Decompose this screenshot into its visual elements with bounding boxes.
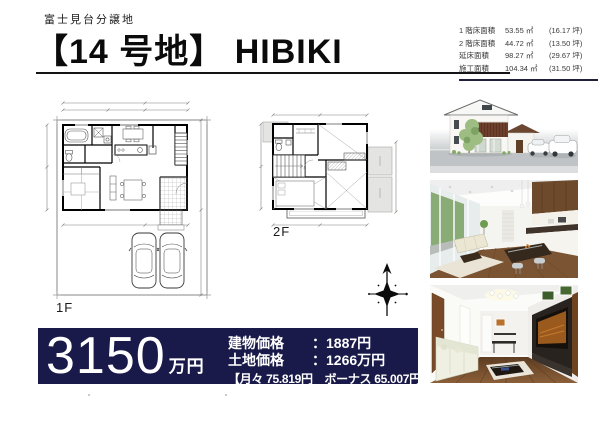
floorplan-2f — [256, 112, 398, 233]
area-value: 44.72 ㎡ — [505, 38, 549, 51]
print-speck — [88, 394, 90, 396]
price-amount: 3150 — [46, 332, 166, 380]
exterior-photo — [430, 93, 578, 173]
ldk-interior-render — [430, 180, 578, 278]
price-unit: 万円 — [169, 352, 205, 377]
flyer-page: 富士見台分譲地 【14 号地】 HIBIKI 1 階床面積 53.55 ㎡ (1… — [0, 0, 600, 426]
floor-area-table: 1 階床面積 53.55 ㎡ (16.17 坪) 2 階床面積 44.72 ㎡ … — [459, 25, 598, 81]
living-photo — [430, 285, 578, 383]
north-compass-icon — [366, 262, 410, 320]
price-details: 建物価格 ：1887円 土地価格 ：1266万円 【月々 75.819円 ボーナ… — [228, 335, 414, 387]
exterior-render — [430, 93, 578, 173]
living-interior-render — [430, 285, 578, 383]
ldk-photo — [430, 180, 578, 278]
land-price-value: ：1266万円 — [312, 352, 385, 369]
floorplan-1f-label: 1F — [56, 300, 73, 315]
table-row: 延床面積 98.27 ㎡ (29.67 坪) — [459, 50, 598, 63]
table-row: 1 階床面積 53.55 ㎡ (16.17 坪) — [459, 25, 598, 38]
area-tsubo: (29.67 坪) — [549, 50, 598, 63]
building-price-value: ：1887円 — [312, 335, 371, 352]
area-tsubo: (13.50 坪) — [549, 38, 598, 51]
table-row: 2 階床面積 44.72 ㎡ (13.50 坪) — [459, 38, 598, 51]
payment-note: 【月々 75.819円 ボーナス 65.007円】 — [228, 370, 414, 387]
floorplan-1f — [40, 98, 215, 326]
land-price-row: 土地価格 ：1266万円 — [228, 352, 414, 369]
page-title: 【14 号地】 HIBIKI — [34, 24, 343, 73]
area-label: 2 階床面積 — [459, 38, 505, 51]
title-underline — [36, 72, 510, 74]
price-group: 3150 万円 — [46, 332, 205, 380]
area-value: 104.34 ㎡ — [505, 63, 549, 76]
area-value: 53.55 ㎡ — [505, 25, 549, 38]
building-price-row: 建物価格 ：1887円 — [228, 335, 414, 352]
area-tsubo: (16.17 坪) — [549, 25, 598, 38]
price-banner: 3150 万円 建物価格 ：1887円 土地価格 ：1266万円 【月々 75.… — [38, 328, 418, 384]
building-price-label: 建物価格 — [228, 335, 312, 352]
area-tsubo: (31.50 坪) — [549, 63, 598, 76]
floorplan-2f-label: 2F — [273, 224, 290, 239]
land-price-label: 土地価格 — [228, 352, 312, 369]
area-value: 98.27 ㎡ — [505, 50, 549, 63]
area-label: 施工面積 — [459, 63, 505, 76]
print-speck — [225, 394, 227, 396]
area-label: 延床面積 — [459, 50, 505, 63]
area-label: 1 階床面積 — [459, 25, 505, 38]
table-row: 施工面積 104.34 ㎡ (31.50 坪) — [459, 63, 598, 76]
